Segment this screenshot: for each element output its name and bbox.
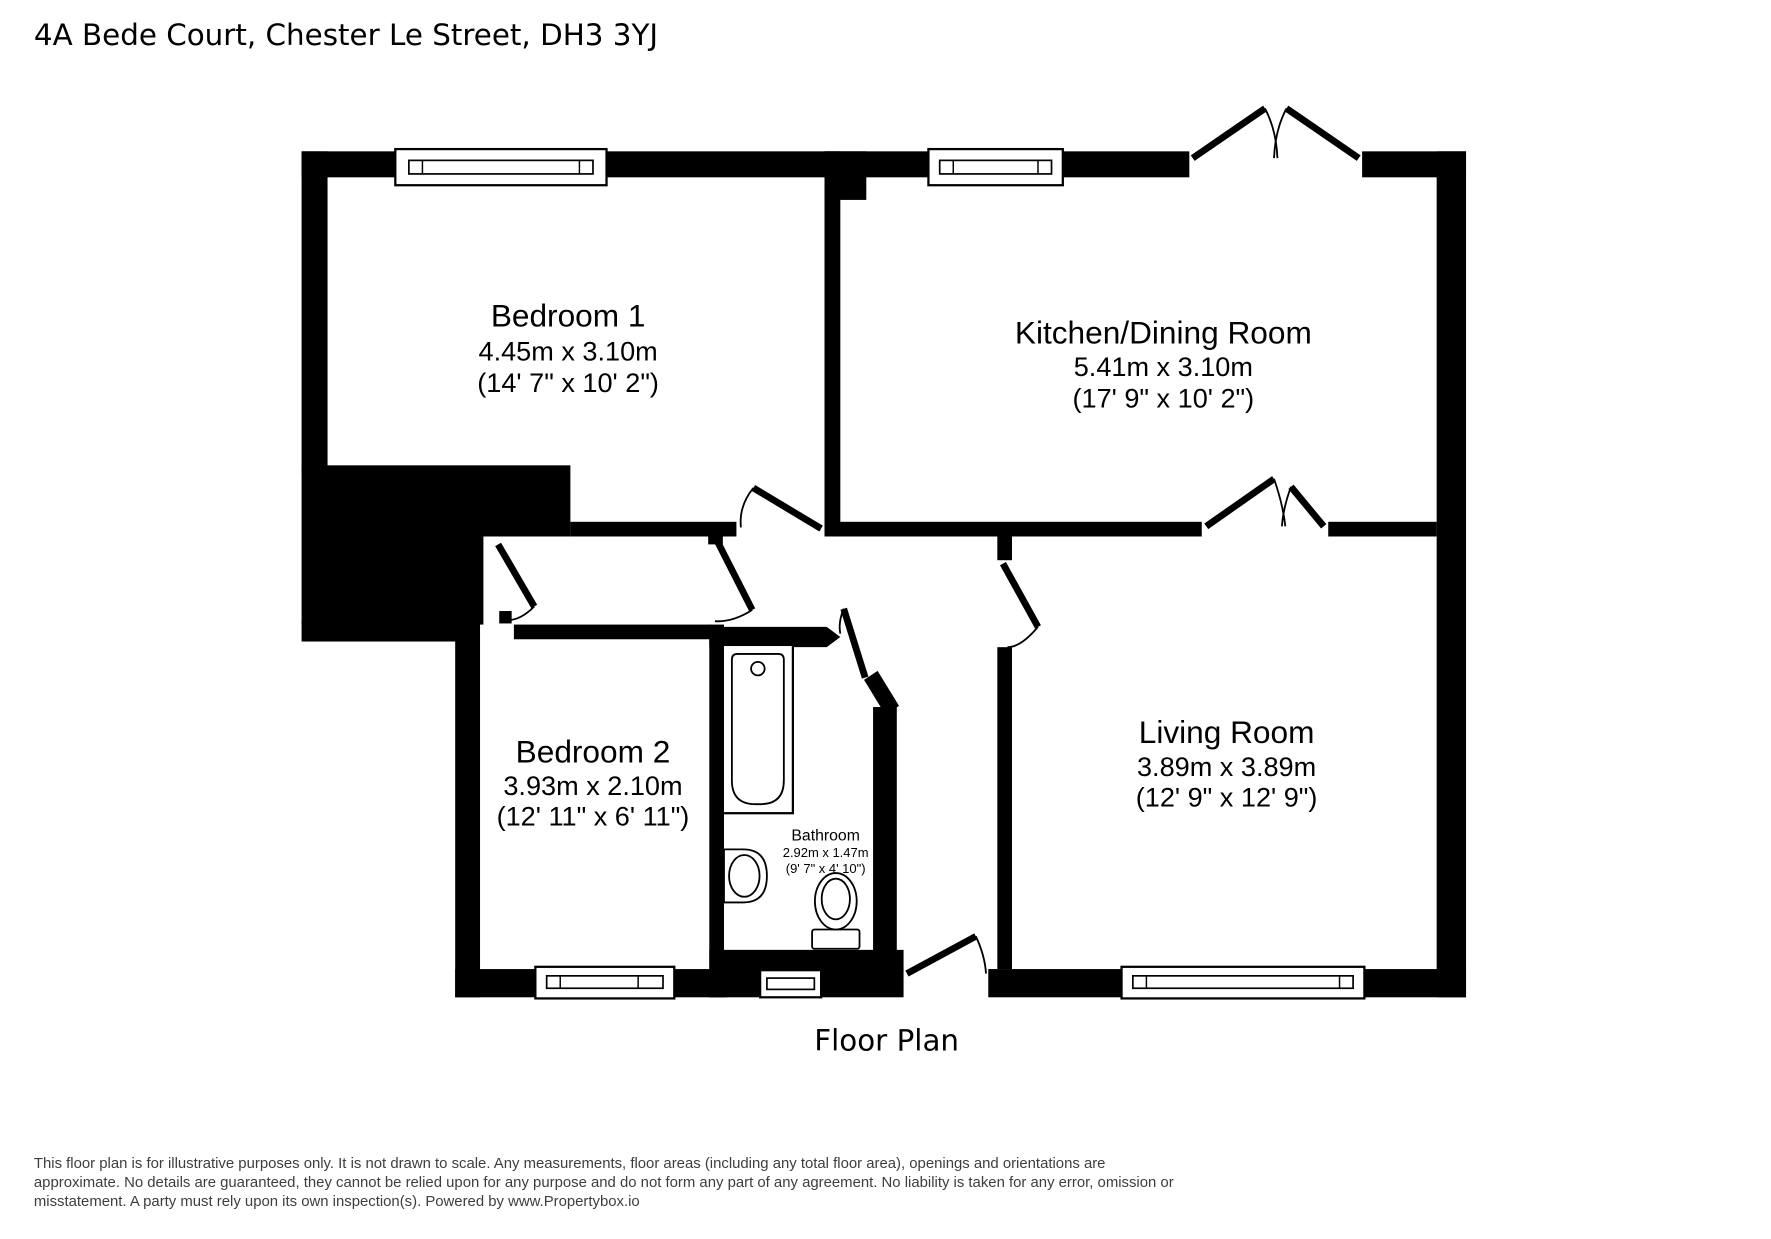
wall-step-bottom [302,620,480,641]
kitchen-metric: 5.41m x 3.10m [1074,351,1253,382]
living-metric: 3.89m x 3.89m [1137,751,1316,782]
french-doors-kitchen [1193,108,1359,158]
bedroom1-window [395,149,606,185]
page-title: 4A Bede Court, Chester Le Street, DH3 3Y… [34,18,658,52]
bedroom2-imperial: (12' 11" x 6' 11") [497,801,690,832]
wall-bottom-1 [455,969,536,997]
walls [302,151,1466,997]
toilet [812,873,859,949]
kitchen-window [928,149,1062,185]
bedroom1-imperial: (14' 7" x 10' 2") [477,367,659,398]
bedroom1-metric: 4.45m x 3.10m [479,335,658,366]
wall-bathroom-bottom-strip [709,950,903,971]
wall-bedroom1-bottom-thick [302,465,571,536]
wall-bathroom-right [873,707,897,952]
wall-bedroom2-top [514,625,712,640]
bedroom1-name: Bedroom 1 [491,297,646,333]
entrance-door [907,936,986,973]
kitchen-name: Kitchen/Dining Room [1015,314,1312,350]
wall-bedroom2-left [455,639,480,997]
bedroom2-window [535,967,674,999]
living-name: Living Room [1139,714,1315,750]
living-imperial: (12' 9" x 12' 9") [1136,781,1318,812]
bathtub [723,645,793,813]
bathroom-metric: 2.92m x 1.47m [783,845,869,860]
living-room-door [1003,564,1038,648]
living-room-label: Living Room 3.89m x 3.89m (12' 9" x 12' … [1136,714,1318,812]
bathroom-label: Bathroom 2.92m x 1.47m (9' 7" x 4' 10") [783,827,869,876]
wall-bedroom1-kitchen-divider [825,151,841,536]
bedroom2-door [498,544,534,620]
wall-top-3 [1061,151,1190,177]
bedroom2-label: Bedroom 2 3.93m x 2.10m (12' 11" x 6' 11… [497,733,690,831]
hall-inner-door [715,541,752,621]
bathroom-door [840,609,865,678]
wall-bottom-4 [1363,969,1466,997]
bathroom-window [760,970,821,997]
sink [724,849,767,902]
wall-bathroom-door-jamb [864,671,899,715]
bedroom1-door [741,488,821,529]
wall-right [1437,151,1466,997]
kitchen-label: Kitchen/Dining Room 5.41m x 3.10m (17' 9… [1015,314,1312,413]
living-room-window [1122,967,1365,999]
doors [498,108,1359,973]
sink-basin [729,855,759,897]
disclaimer: This floor plan is for illustrative purp… [34,1156,1174,1210]
bathtub-tap-icon [751,662,765,676]
wall-kitchen-bottom-2 [1328,522,1436,537]
wall-living-left [997,647,1012,969]
toilet-cistern [812,930,859,949]
disclaimer-line-2: approximate. No details are guaranteed, … [34,1175,1174,1191]
plan-caption: Floor Plan [814,1023,959,1057]
bathroom-name: Bathroom [791,827,860,844]
room-labels: Bedroom 1 4.45m x 3.10m (14' 7" x 10' 2"… [477,297,1317,876]
bedroom1-label: Bedroom 1 4.45m x 3.10m (14' 7" x 10' 2"… [477,297,659,398]
wall-kitchen-bottom-1 [838,522,1202,537]
toilet-seat [822,879,850,920]
floor-plan-canvas: 4A Bede Court, Chester Le Street, DH3 3Y… [0,0,1771,1239]
kitchen-imperial: (17' 9" x 10' 2") [1072,383,1254,414]
wall-bathroom-bottom-right [821,969,903,997]
bedroom2-metric: 3.93m x 2.10m [503,770,682,801]
floor-plan-page: 4A Bede Court, Chester Le Street, DH3 3Y… [0,0,1771,1239]
wall-left [302,151,328,473]
wall-bedroom2-door-stub [499,611,511,623]
wall-living-stub [997,536,1012,560]
disclaimer-line-1: This floor plan is for illustrative purp… [34,1156,1106,1172]
wall-left-step-block [302,536,484,624]
bathroom-imperial: (9' 7" x 4' 10") [786,861,866,876]
fixtures [723,645,860,949]
double-doors-kitchen-living [1206,479,1323,526]
wall-top-2 [604,151,930,177]
wall-bottom-3 [988,969,1122,997]
bedroom2-name: Bedroom 2 [516,733,671,769]
disclaimer-line-3: misstatement. A party must rely upon its… [34,1194,640,1210]
